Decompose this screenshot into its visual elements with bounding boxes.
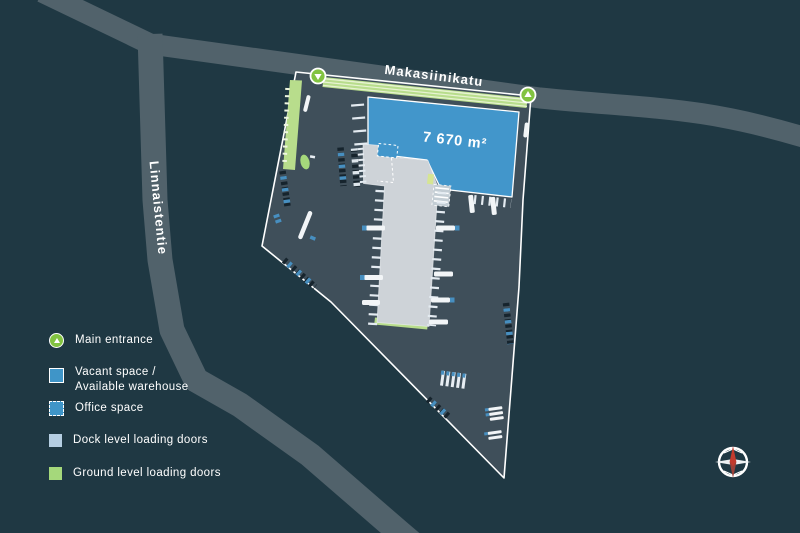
site-plan-page: Makasiinikatu Linnaistentie 7 670 m² Mai… bbox=[0, 0, 800, 533]
entrance-marker-east[interactable] bbox=[521, 88, 536, 103]
entrance-marker-north[interactable] bbox=[311, 69, 326, 84]
ground-door-east bbox=[427, 174, 434, 185]
site-map: Makasiinikatu Linnaistentie 7 670 m² bbox=[0, 0, 800, 533]
compass-icon bbox=[715, 446, 751, 478]
